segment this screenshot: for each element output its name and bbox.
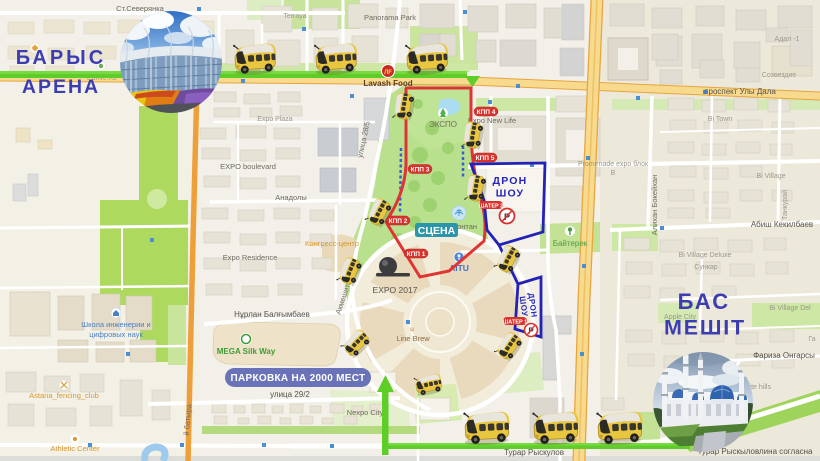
svg-text:Созвездие: Созвездие bbox=[762, 72, 797, 79]
svg-text:ДРОН: ДРОН bbox=[493, 175, 528, 187]
svg-text:КПП 2: КПП 2 bbox=[389, 218, 408, 225]
svg-text:Га: Га bbox=[808, 336, 815, 343]
svg-text:КПП 3: КПП 3 bbox=[411, 167, 430, 174]
svg-text:БАРЫС: БАРЫС bbox=[16, 47, 106, 69]
svg-text:Ст.Северянка: Ст.Северянка bbox=[116, 4, 164, 13]
svg-text:Танкурай: Танкурай bbox=[781, 190, 789, 220]
svg-text:МЕШІТ: МЕШІТ bbox=[664, 316, 746, 340]
svg-text:Турар Рыскулов: Турар Рыскулов bbox=[504, 448, 564, 457]
svg-text:Expo Residence: Expo Residence bbox=[223, 253, 278, 262]
svg-text:Bi Town: Bi Town bbox=[708, 116, 732, 123]
svg-text:Bi Village Del: Bi Village Del bbox=[769, 305, 811, 312]
svg-text:Алихан Бокейхан: Алихан Бокейхан bbox=[650, 175, 659, 235]
svg-text:ПАРКОВКА НА 2000 МЕСТ: ПАРКОВКА НА 2000 МЕСТ bbox=[231, 373, 366, 384]
svg-text:ЭКСПО: ЭКСПО bbox=[429, 120, 457, 129]
svg-text:Panorama Park: Panorama Park bbox=[364, 13, 416, 22]
svg-text:КПП 1: КПП 1 bbox=[407, 251, 426, 258]
svg-text:Адал -1: Адал -1 bbox=[775, 36, 800, 43]
svg-text:Анадолы: Анадолы bbox=[275, 193, 306, 202]
svg-text:ШАТЕР 2: ШАТЕР 2 bbox=[479, 204, 504, 210]
svg-text:Astana_fencing_club: Astana_fencing_club bbox=[29, 391, 99, 400]
svg-text:Абиш Кекилбаев: Абиш Кекилбаев bbox=[751, 220, 813, 229]
svg-text:проспект Улы Дала: проспект Улы Дала bbox=[704, 87, 776, 96]
svg-text:Школа инженерии и: Школа инженерии и bbox=[81, 320, 151, 329]
svg-text:Nexpo City: Nexpo City bbox=[347, 408, 384, 417]
svg-text:Байтерек: Байтерек bbox=[553, 239, 588, 248]
svg-text:Bi Village: Bi Village bbox=[756, 173, 785, 180]
svg-text:БАС: БАС bbox=[678, 289, 731, 314]
svg-text:Нұрлан Балғымбаев: Нұрлан Балғымбаев bbox=[234, 310, 310, 319]
svg-text:Line Brew: Line Brew bbox=[396, 334, 430, 343]
svg-text:EXPO 2017: EXPO 2017 bbox=[373, 285, 418, 295]
svg-text:⍦: ⍦ bbox=[410, 326, 414, 333]
svg-text:АРЕНА: АРЕНА bbox=[22, 76, 100, 98]
svg-text:Bi Village Deluxe: Bi Village Deluxe bbox=[679, 252, 732, 259]
svg-text:цифровых наук: цифровых наук bbox=[89, 330, 143, 339]
svg-text:ЛF: ЛF bbox=[384, 70, 392, 76]
svg-text:Конгресс-центр: Конгресс-центр bbox=[305, 239, 359, 248]
svg-text:СЦЕНА: СЦЕНА bbox=[418, 225, 456, 237]
svg-text:Terraya: Terraya bbox=[283, 13, 306, 20]
svg-text:КПП 4: КПП 4 bbox=[477, 109, 496, 116]
svg-text:Athletic Center: Athletic Center bbox=[50, 444, 100, 453]
svg-text:Expo Plaza: Expo Plaza bbox=[257, 116, 293, 123]
svg-text:MEGA Silk Way: MEGA Silk Way bbox=[217, 347, 276, 356]
svg-text:EXPO boulevard: EXPO boulevard bbox=[220, 162, 276, 171]
svg-text:ШАТЕР 1: ШАТЕР 1 bbox=[503, 320, 528, 326]
svg-text:Фариза Онгарсы: Фариза Онгарсы bbox=[753, 351, 815, 360]
svg-text:Promenade expo блок: Promenade expo блок bbox=[578, 160, 649, 168]
svg-text:Сункар: Сункар bbox=[694, 264, 718, 271]
svg-text:КПП 5: КПП 5 bbox=[476, 155, 495, 162]
svg-text:ШОУ: ШОУ bbox=[496, 188, 525, 200]
svg-text:улица 29/2: улица 29/2 bbox=[270, 390, 310, 399]
svg-text:B: B bbox=[611, 170, 616, 177]
